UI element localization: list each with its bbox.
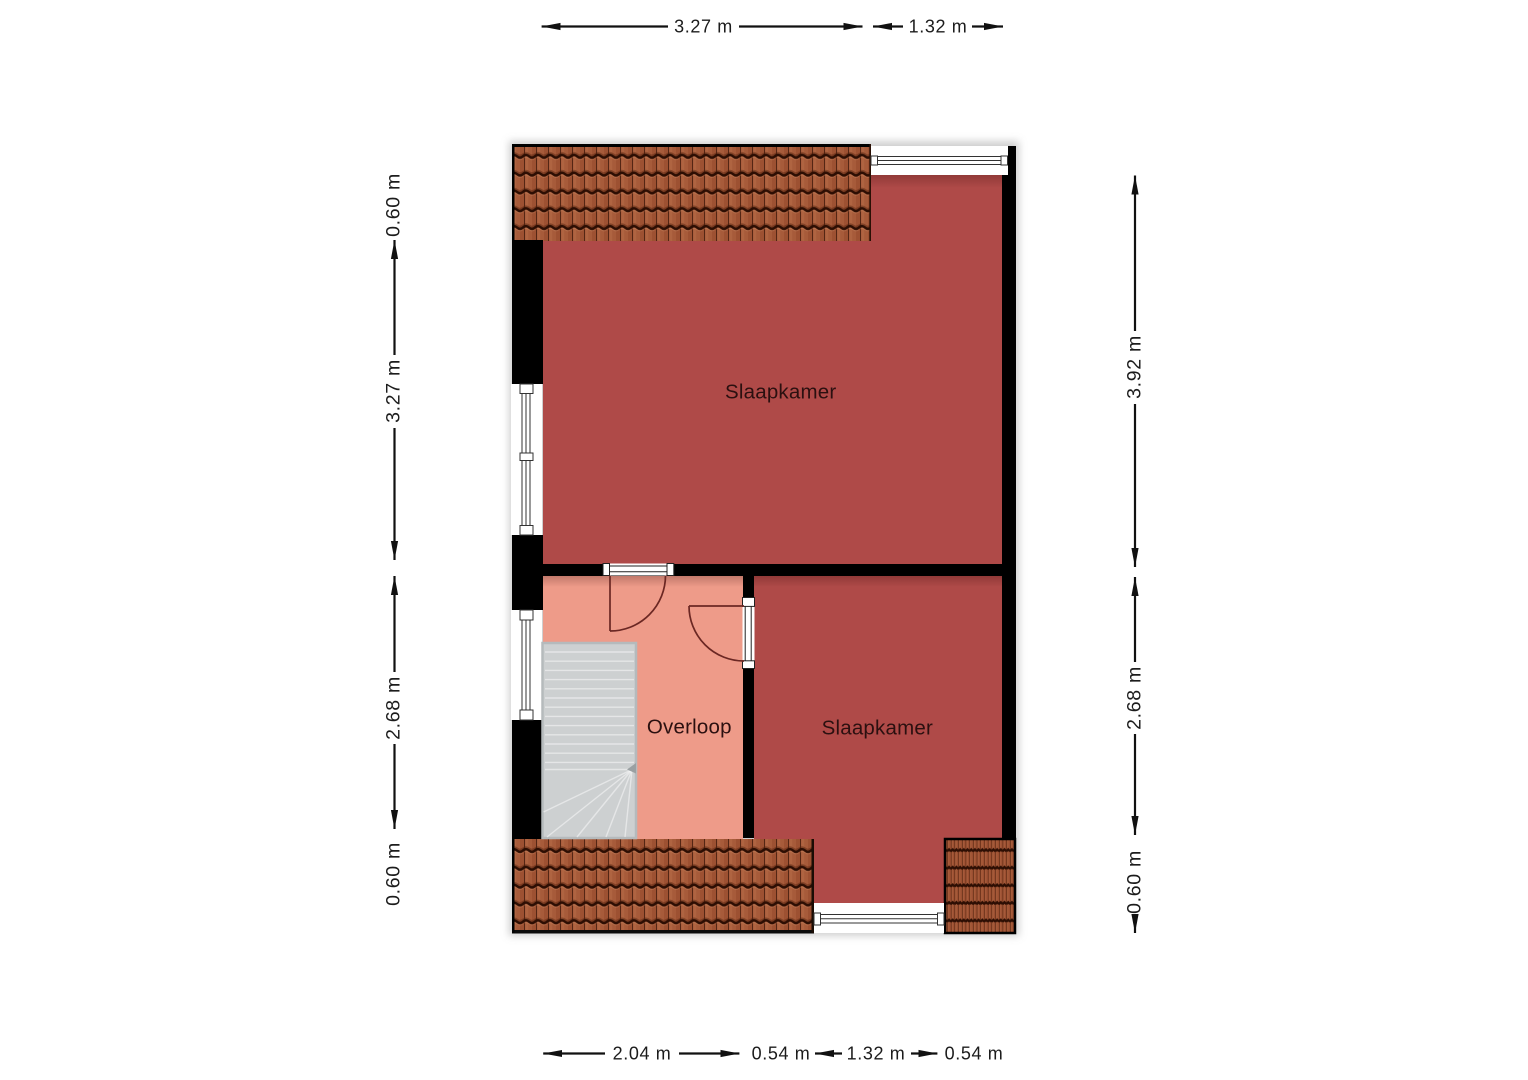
svg-text:1.32 m: 1.32 m — [909, 17, 968, 37]
svg-text:0.54 m: 0.54 m — [945, 1044, 1004, 1064]
svg-text:Slaapkamer: Slaapkamer — [822, 717, 933, 740]
svg-text:0.60 m: 0.60 m — [1124, 850, 1146, 914]
svg-text:3.27 m: 3.27 m — [674, 17, 733, 37]
svg-text:0.60 m: 0.60 m — [383, 842, 405, 906]
svg-text:1.32 m: 1.32 m — [847, 1044, 906, 1064]
svg-text:0.60 m: 0.60 m — [383, 173, 405, 237]
svg-text:3.92 m: 3.92 m — [1124, 335, 1146, 399]
svg-text:2.68 m: 2.68 m — [383, 676, 405, 740]
svg-text:Overloop: Overloop — [647, 716, 732, 739]
svg-text:2.04 m: 2.04 m — [613, 1044, 672, 1064]
svg-text:0.54 m: 0.54 m — [752, 1044, 811, 1064]
svg-text:2.68 m: 2.68 m — [1124, 666, 1146, 730]
svg-text:3.27 m: 3.27 m — [383, 359, 405, 423]
svg-text:Slaapkamer: Slaapkamer — [725, 380, 836, 403]
